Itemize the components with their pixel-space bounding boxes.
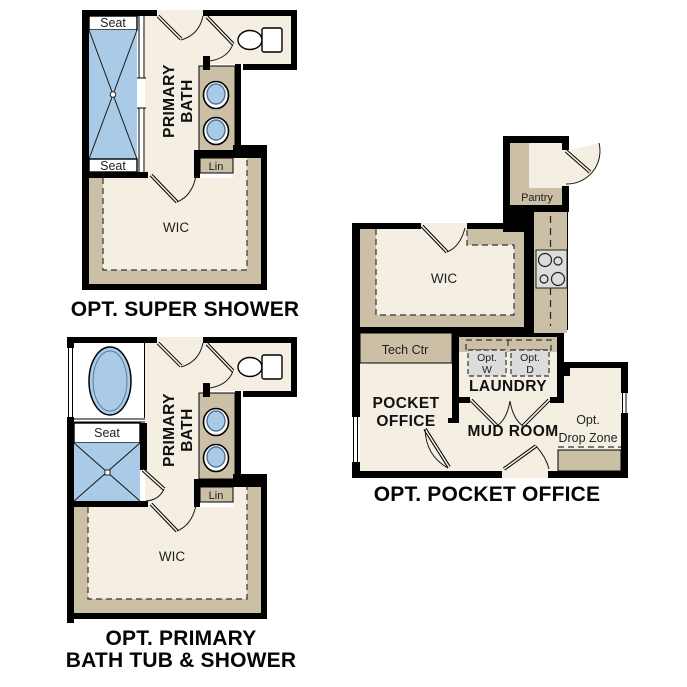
label-opt-dryer-2: D: [526, 364, 534, 376]
sink-icon: [204, 82, 229, 109]
label-drop-zone-2: Drop Zone: [558, 431, 617, 445]
window-left: [67, 348, 74, 417]
room-label-primary-bath-1: PRIMARY: [161, 64, 178, 138]
caption-pocket-office: OPT. POCKET OFFICE: [374, 483, 600, 506]
window-office-left: [352, 417, 360, 462]
floor-plan-tub-shower: Seat PRIMARY BATH Lin WIC OPT. PRIMARY B…: [66, 337, 297, 672]
room-label-wic: WIC: [431, 271, 457, 286]
cooktop-icon: [536, 250, 567, 288]
room-label-seat-bottom: Seat: [100, 159, 126, 173]
sink-icon: [204, 118, 229, 145]
room-label-pocket-2: OFFICE: [376, 413, 435, 430]
drop-zone-bench: [558, 450, 621, 471]
tub-shower-column: [74, 343, 145, 501]
room-label-pantry: Pantry: [521, 192, 553, 204]
sink-icon: [204, 445, 229, 472]
room-label-primary-bath-1: PRIMARY: [161, 393, 178, 467]
sink-icon: [204, 409, 229, 436]
room-label-primary-bath-2: BATH: [179, 408, 196, 452]
label-opt-dryer-1: Opt.: [520, 352, 540, 364]
room-label-seat-top: Seat: [100, 16, 126, 30]
shower-drain: [110, 92, 116, 98]
floor-plan-sheet: Seat Seat PRIMARY BATH Lin WIC OPT. SUPE…: [0, 0, 687, 687]
room-label-wic: WIC: [163, 220, 189, 235]
room-label-primary-bath-2: BATH: [179, 79, 196, 123]
label-opt-washer-2: W: [482, 364, 492, 376]
floor-plan-pocket-office: Pantry WIC Tech Ctr POCKET OFFICE Opt. W…: [352, 136, 628, 506]
caption-tub-shower-1: OPT. PRIMARY: [106, 627, 257, 650]
room-label-pocket-1: POCKET: [373, 395, 440, 412]
shower-glass-wall: [137, 16, 146, 172]
room-label-laundry: LAUNDRY: [469, 378, 547, 395]
room-label-wic: WIC: [159, 549, 185, 564]
room-label-lin: Lin: [209, 490, 224, 502]
label-drop-zone-1: Opt.: [576, 413, 600, 427]
room-label-seat: Seat: [94, 426, 120, 440]
room-label-lin: Lin: [209, 161, 224, 173]
room-label-mud-room: MUD ROOM: [467, 423, 558, 440]
shower-drain: [105, 470, 110, 475]
caption-super-shower: OPT. SUPER SHOWER: [71, 298, 300, 321]
super-shower-shower: [89, 16, 146, 172]
bathtub-icon: [89, 347, 131, 415]
caption-tub-shower-2: BATH TUB & SHOWER: [66, 649, 297, 672]
window-drop-zone-right: [621, 393, 628, 413]
room-label-tech-ctr: Tech Ctr: [382, 343, 429, 357]
label-opt-washer-1: Opt.: [477, 352, 497, 364]
floor-plan-super-shower: Seat Seat PRIMARY BATH Lin WIC OPT. SUPE…: [71, 10, 300, 321]
